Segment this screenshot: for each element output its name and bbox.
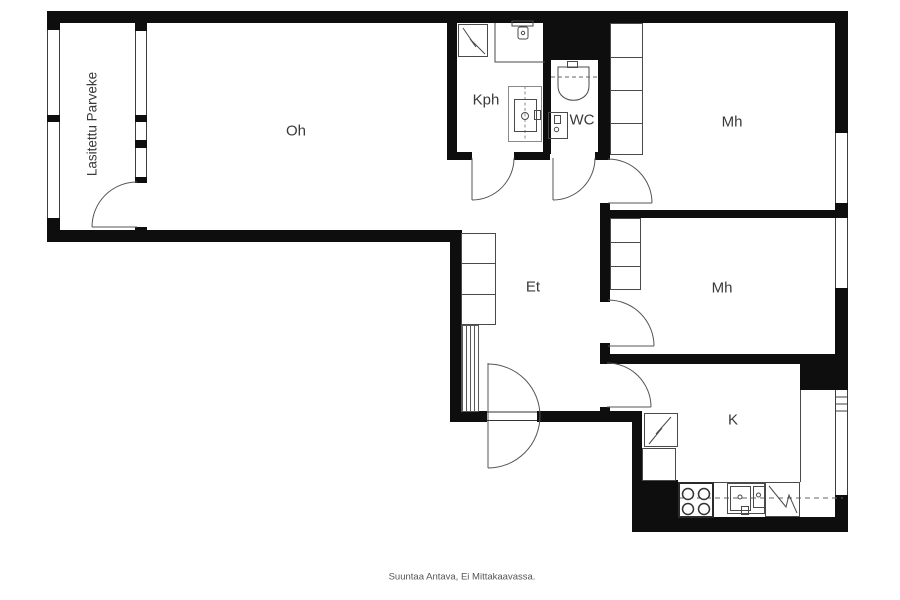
plan-caption: Suuntaa Antava, Ei Mittakaavassa. bbox=[389, 572, 536, 583]
counter-line bbox=[678, 390, 801, 483]
room-label-balcony: Lasitettu Parveke bbox=[85, 72, 100, 176]
room-label-hallway: Et bbox=[526, 279, 540, 296]
fixture-linework bbox=[0, 0, 900, 600]
kitchen-door bbox=[607, 363, 651, 407]
room-label-wc: WC bbox=[570, 112, 595, 129]
room-label-kitchen: K bbox=[728, 412, 738, 429]
balcony-door bbox=[92, 182, 137, 227]
wc-sink-symbol bbox=[549, 113, 568, 139]
electrical-cabinet-symbol bbox=[459, 25, 488, 57]
wardrobe bbox=[610, 219, 641, 290]
shower-enclosure bbox=[495, 23, 545, 62]
dishwasher-symbol bbox=[766, 483, 800, 517]
kitchen-sink-symbol bbox=[728, 484, 765, 515]
stove-symbol bbox=[679, 483, 713, 517]
fridge-symbol bbox=[643, 414, 678, 481]
bedroom-middle-door bbox=[608, 300, 654, 346]
room-label-bedroom-top: Mh bbox=[722, 114, 743, 131]
wardrobe bbox=[610, 24, 643, 155]
wardrobe bbox=[461, 234, 496, 325]
washing-machine-symbol bbox=[509, 86, 542, 142]
room-label-bedroom-middle: Mh bbox=[712, 280, 733, 297]
kitchen-window-divisions bbox=[836, 397, 847, 411]
toilet-symbol bbox=[558, 62, 589, 101]
entrance-door bbox=[487, 363, 540, 468]
bedroom-top-door bbox=[608, 159, 652, 203]
room-label-living-room: Oh bbox=[286, 123, 306, 140]
floor-plan: Lasitettu Parveke Oh Kph WC Mh Mh Et K S… bbox=[0, 0, 900, 600]
washbasin-symbol bbox=[512, 21, 533, 39]
wc-door bbox=[553, 158, 595, 200]
room-label-bathroom: Kph bbox=[473, 92, 500, 109]
bathroom-door bbox=[472, 158, 514, 200]
